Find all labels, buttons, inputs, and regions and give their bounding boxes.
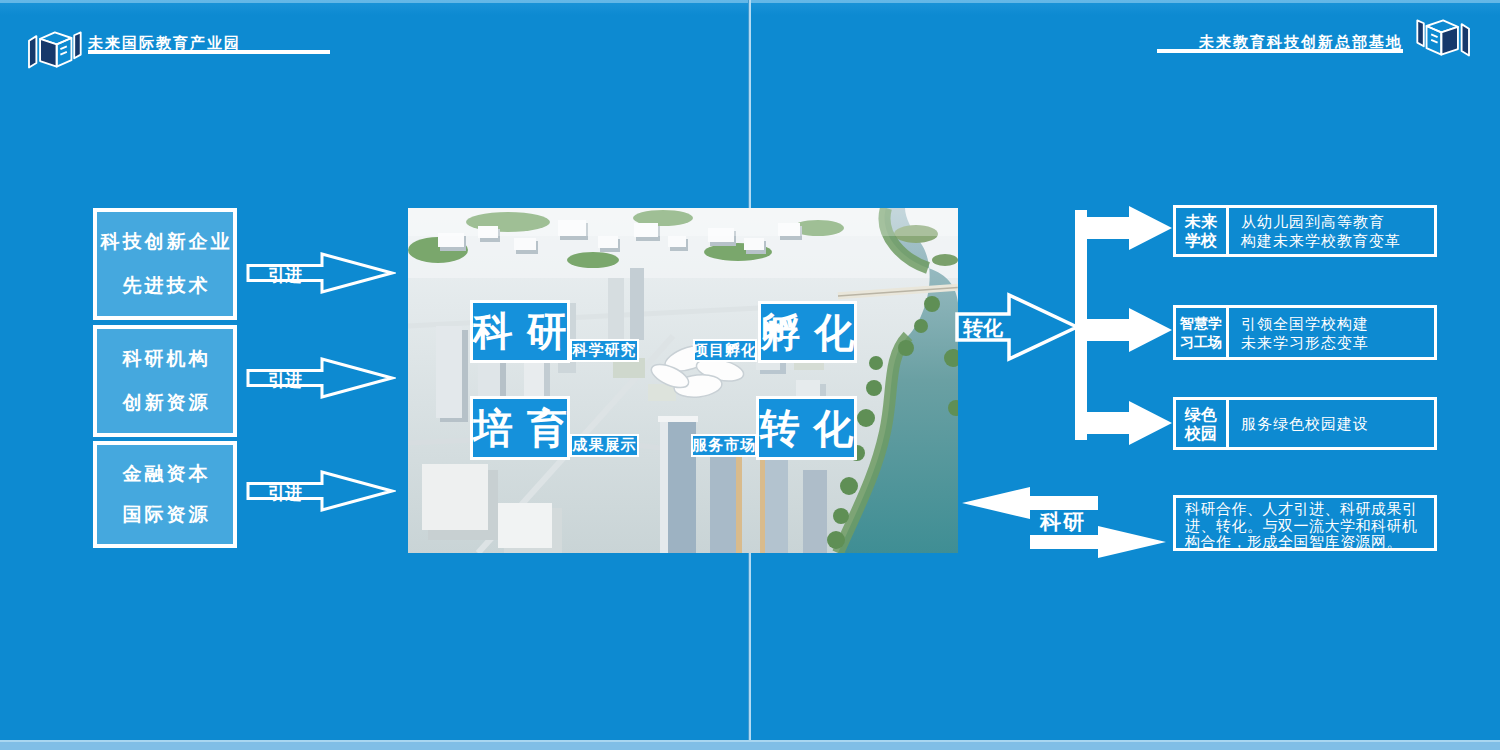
transform-arrow-label: 转化	[957, 315, 1009, 342]
stage-box-peiyu: 培育	[470, 396, 570, 460]
source-box-line: 国际资源	[120, 502, 211, 528]
source-box-tech-enterprise: 科技创新企业 先进技术	[93, 208, 237, 320]
research-arrow-right	[1028, 524, 1168, 560]
outcome-box-future-school: 未来 学校 从幼儿园到高等教育 构建未来学校教育变革	[1173, 205, 1437, 257]
stage-tag-achievement-display: 成果展示	[570, 434, 639, 457]
stage-tag-label: 科学研究	[573, 341, 637, 360]
stage-box-fuhua-label: 孵化	[747, 305, 869, 360]
outcome-desc-line: 从幼儿园到高等教育	[1241, 212, 1434, 231]
header-underline-left	[88, 50, 330, 54]
stage-tag-project-incubation: 项目孵化	[693, 339, 757, 362]
outcome-label-line: 学校	[1185, 231, 1217, 250]
outcome-desc-line: 服务绿色校园建设	[1241, 414, 1434, 433]
source-box-line: 先进技术	[120, 273, 211, 299]
source-box-line: 科技创新企业	[98, 229, 233, 255]
aerial-city-rendering: 科研 孵化 培育 转化 科学研究 项目孵化 成果展示 服务市场	[408, 208, 958, 553]
stage-box-peiyu-label: 培育	[459, 401, 581, 456]
outcome-box-green-campus: 绿色 校园 服务绿色校园建设	[1173, 397, 1437, 450]
stage-tag-scientific-research: 科学研究	[570, 339, 639, 362]
source-box-line: 科研机构	[120, 346, 211, 372]
branch-arrow-2	[1081, 307, 1173, 353]
outcome-box-smart-learning-factory: 智慧学 习工场 引领全国学校构建 未来学习形态变革	[1173, 305, 1437, 360]
source-box-line: 金融资本	[120, 461, 211, 487]
slide-canvas: 未来国际教育产业园 未来教育科技创新总部基地 科技创新企业 先进技术 科研机构 …	[0, 0, 1500, 750]
import-arrow-1-label: 引进	[248, 264, 322, 287]
research-note-line: 构合作，形成全国智库资源网。	[1185, 534, 1425, 551]
stage-tag-label: 服务市场	[692, 436, 756, 455]
research-note-line: 进、转化。与双一流大学和科研机	[1185, 518, 1425, 535]
outcome-label-line: 未来	[1185, 212, 1217, 231]
branch-arrow-3	[1081, 400, 1173, 446]
stage-box-keyan: 科研	[470, 300, 570, 363]
outcome-desc-line: 引领全国学校构建	[1241, 314, 1434, 333]
cube-logo-right-icon	[1414, 14, 1476, 62]
research-note-line: 科研合作、人才引进、科研成果引	[1185, 501, 1425, 518]
outcome-desc-line: 未来学习形态变革	[1241, 333, 1434, 352]
bottom-edge-strip	[0, 740, 1500, 750]
source-box-line: 创新资源	[120, 390, 211, 416]
research-note-box: 科研合作、人才引进、科研成果引 进、转化。与双一流大学和科研机 构合作，形成全国…	[1173, 495, 1437, 551]
import-arrow-2-label: 引进	[248, 369, 322, 392]
outcome-label-line: 习工场	[1180, 333, 1222, 352]
stage-box-zhuanhua-label: 转化	[746, 401, 868, 456]
stage-box-fuhua: 孵化	[758, 301, 857, 363]
outcome-label-line: 绿色	[1185, 405, 1217, 424]
stage-tag-service-market: 服务市场	[691, 434, 757, 457]
cube-logo-left-icon	[22, 26, 84, 74]
stage-box-keyan-label: 科研	[459, 304, 581, 359]
outcome-label-line: 智慧学	[1180, 314, 1222, 333]
source-box-financial-capital: 金融资本 国际资源	[93, 441, 237, 548]
stage-box-zhuanhua: 转化	[756, 396, 857, 460]
aerial-city-image	[408, 208, 958, 553]
source-box-research-institution: 科研机构 创新资源	[93, 325, 237, 437]
outcome-label-line: 校园	[1185, 424, 1217, 443]
stage-tag-label: 项目孵化	[693, 341, 757, 360]
header-title-right: 未来教育科技创新总部基地	[1199, 33, 1403, 52]
outcome-desc-line: 构建未来学校教育变革	[1241, 231, 1434, 250]
branch-arrow-1	[1081, 205, 1173, 251]
stage-tag-label: 成果展示	[573, 436, 637, 455]
import-arrow-3-label: 引进	[248, 482, 322, 505]
